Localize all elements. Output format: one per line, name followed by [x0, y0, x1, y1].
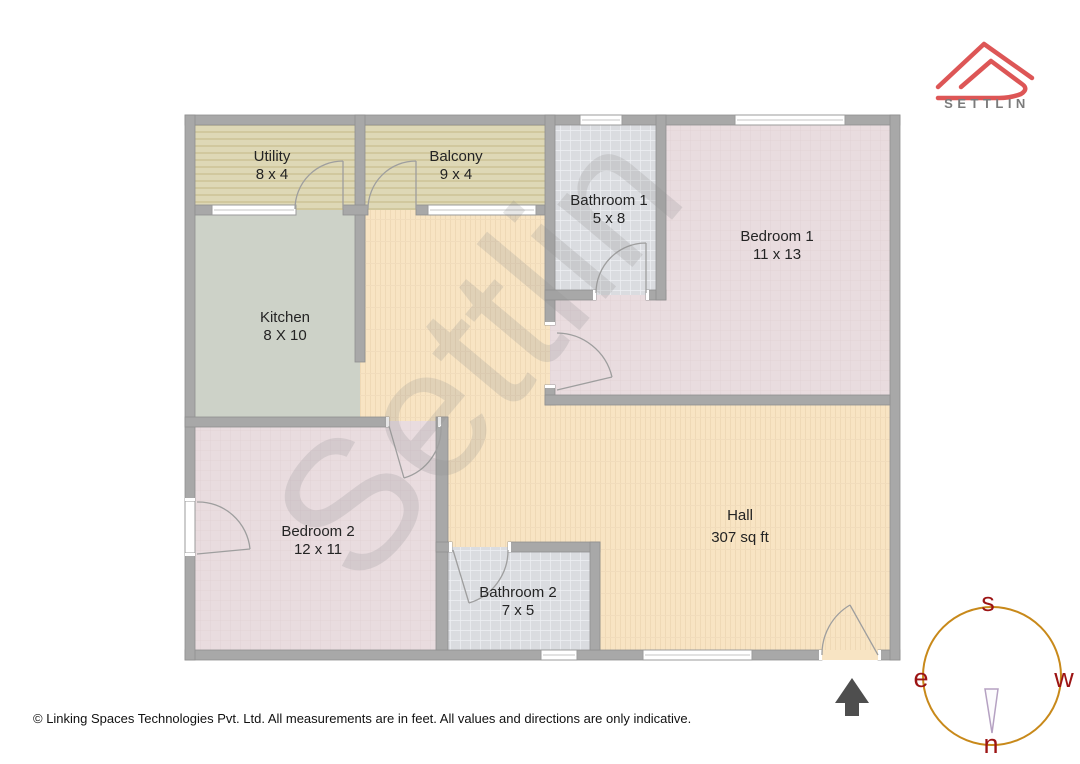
floor-plan-page: Settlin Utility 8 x 4 Balcony 9 x 4 Bath… — [0, 0, 1080, 764]
compass-letter-e: e — [913, 663, 928, 693]
compass-letter-w: w — [1053, 663, 1074, 693]
room-utility-dims: 8 x 4 — [256, 166, 289, 183]
main-door-opening — [822, 650, 878, 660]
entrance-arrow-icon — [835, 678, 869, 716]
compass: s e w n — [913, 587, 1074, 759]
room-bedroom2-dims: 12 x 11 — [294, 541, 342, 558]
room-hall-dims: 307 sq ft — [711, 529, 769, 546]
compass-letter-n: n — [983, 729, 998, 759]
compass-needle-icon — [985, 689, 998, 733]
settlin-house-icon — [938, 44, 1032, 98]
floor-plan-svg: Settlin Utility 8 x 4 Balcony 9 x 4 Bath… — [0, 0, 1080, 764]
room-bedroom1-label: Bedroom 1 — [740, 228, 813, 245]
room-kitchen-dims: 8 X 10 — [263, 327, 306, 344]
brand-logo: SETTLIN — [938, 44, 1032, 111]
room-bedroom1-dims: 11 x 13 — [753, 246, 801, 263]
room-bathroom1-dims: 5 x 8 — [593, 210, 626, 227]
compass-letter-s: s — [981, 587, 995, 617]
room-bathroom2-label: Bathroom 2 — [479, 584, 557, 601]
room-balcony-dims: 9 x 4 — [440, 166, 473, 183]
copyright-text: © Linking Spaces Technologies Pvt. Ltd. … — [33, 711, 691, 726]
room-utility-label: Utility — [254, 148, 291, 165]
brand-name: SETTLIN — [944, 96, 1030, 111]
room-bedroom2-label: Bedroom 2 — [281, 523, 354, 540]
room-bathroom2-dims: 7 x 5 — [502, 602, 535, 619]
room-bathroom1-label: Bathroom 1 — [570, 192, 648, 209]
room-hall-label: Hall — [727, 507, 753, 524]
room-kitchen-label: Kitchen — [260, 309, 310, 326]
room-balcony-label: Balcony — [429, 148, 483, 165]
